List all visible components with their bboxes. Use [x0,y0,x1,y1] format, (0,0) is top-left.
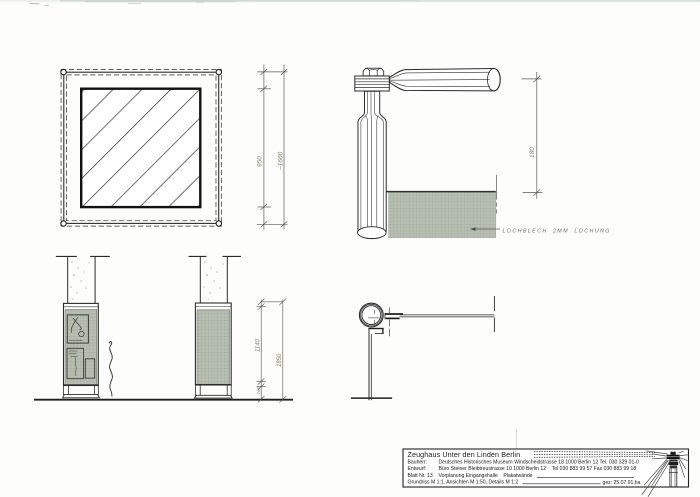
svg-text:gez: 25.07.91,ha: gez: 25.07.91,ha [603,480,641,486]
svg-text:LOCHBLECH 2MM LOCHUNG: LOCHBLECH 2MM LOCHUNG [503,229,611,235]
svg-text:950: 950 [257,156,264,167]
svg-text:1850: 1850 [277,353,283,367]
svg-text:160: 160 [256,386,261,394]
svg-text:Büro Steiner Bleibtreustrasse: Büro Steiner Bleibtreustrasse 10 1000 Be… [439,466,637,472]
svg-text:180: 180 [529,147,536,158]
svg-text:Bauherr:: Bauherr: [408,459,428,465]
svg-text:Grundriss M 1:1, Ansichten M 1: Grundriss M 1:1, Ansichten M 1:50, Detai… [408,479,519,485]
svg-text:~1660: ~1660 [277,151,284,170]
svg-text:Blatt Nr. 13: Blatt Nr. 13 [408,473,433,479]
svg-text:1140: 1140 [256,338,262,352]
svg-text:Deutsches Historisches Museum: Deutsches Historisches Museum Windscheid… [439,459,640,465]
svg-text:Zeughaus Unter den Linden Berl: Zeughaus Unter den Linden Berlin [408,450,521,459]
svg-text:Entwurf:: Entwurf: [408,466,427,472]
svg-text:Vorplanung Eingangshalle Pl: Vorplanung Eingangshalle Plakatwände [439,473,533,479]
